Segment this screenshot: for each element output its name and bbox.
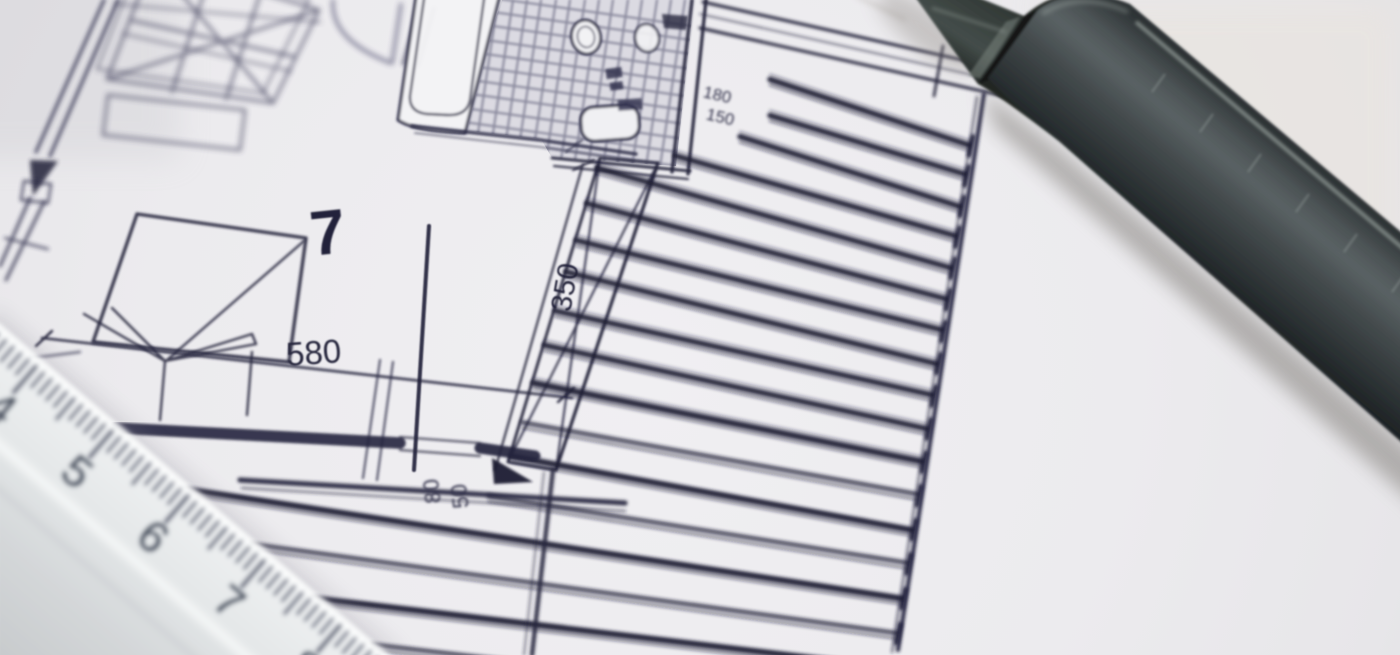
svg-text:580: 580 [285, 332, 343, 373]
svg-text:50: 50 [446, 483, 474, 510]
svg-text:80: 80 [418, 478, 446, 505]
svg-text:7: 7 [307, 197, 349, 270]
